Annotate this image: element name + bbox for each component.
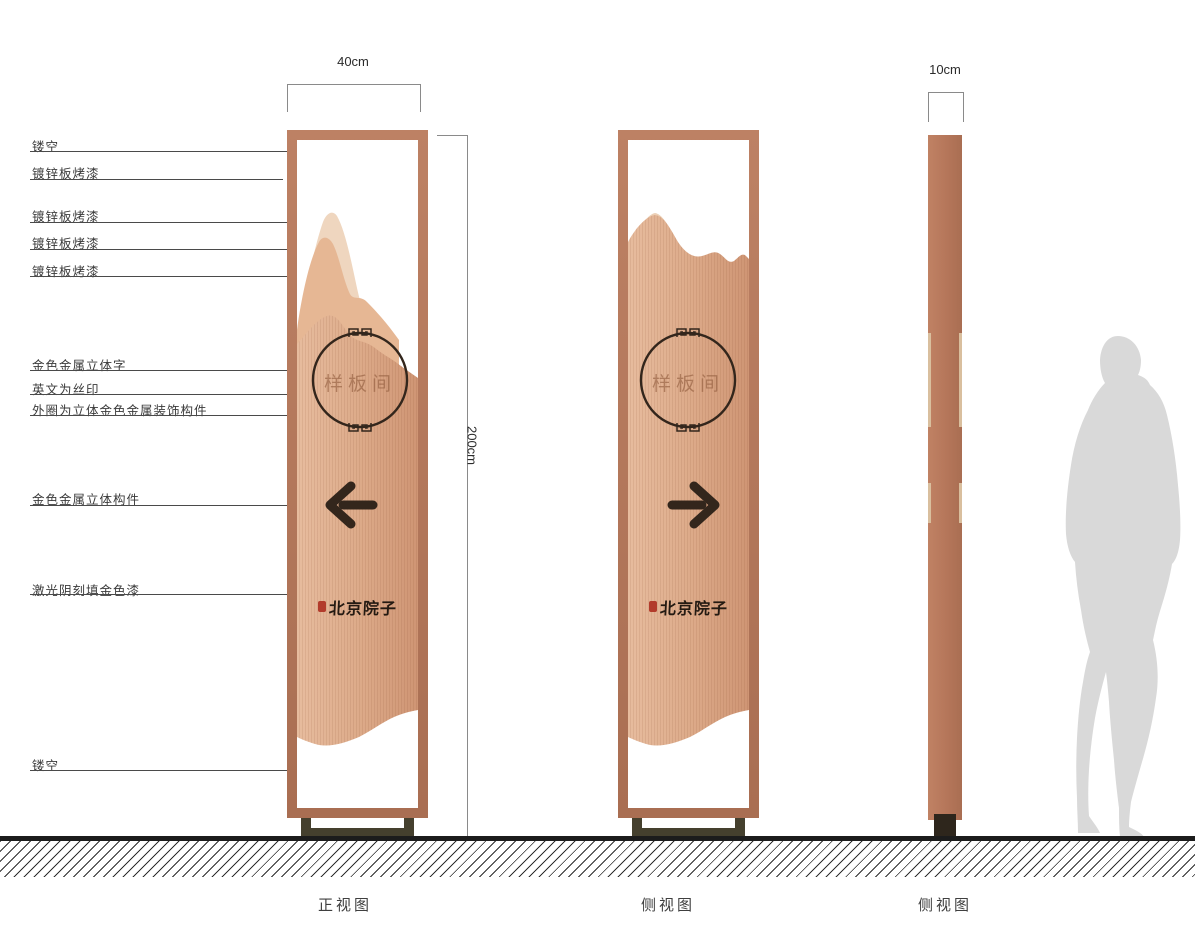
annotation-label-gold-letters: 金色金属立体字	[32, 355, 127, 374]
annotation-label-hollow-top: 镂空	[32, 136, 59, 155]
dimension-line	[467, 135, 468, 838]
profile-base-foot	[934, 814, 956, 838]
leader-line	[30, 594, 298, 595]
profile-protrusion	[928, 483, 931, 523]
caption-profile-view: 侧视图	[885, 894, 1005, 915]
leader-line	[30, 151, 305, 152]
base-bracket	[632, 818, 745, 838]
dimension-tick	[928, 92, 929, 122]
caption-front-view: 正视图	[285, 894, 405, 915]
room-name-text: 样板间	[300, 369, 420, 396]
profile-protrusion	[959, 483, 962, 523]
dimension-tick	[287, 84, 288, 112]
dimension-tick	[437, 135, 468, 136]
brand-logo: 北京院子	[628, 595, 749, 619]
annotation-label-outer-ring: 外圈为立体金色金属装饰构件	[32, 400, 208, 419]
brand-logo-text: 北京院子	[328, 595, 397, 619]
ground-hatching	[0, 841, 1195, 877]
profile-protrusion	[959, 333, 962, 427]
profile-protrusion	[928, 333, 931, 427]
dimension-width-label: 40cm	[293, 54, 413, 69]
profile-view-sign	[928, 135, 962, 820]
seal-stamp-icon	[649, 601, 657, 612]
seal-stamp-icon	[318, 601, 326, 612]
leader-line	[30, 276, 293, 277]
annotation-label-galvanized-4: 镀锌板烤漆	[32, 261, 100, 280]
dimension-tick	[420, 84, 421, 112]
brand-logo: 北京院子	[297, 595, 418, 619]
dimension-line	[287, 84, 421, 85]
leader-line	[30, 249, 292, 250]
annotation-label-hollow-bottom: 镂空	[32, 755, 59, 774]
dimension-line	[928, 92, 964, 93]
dimension-height-label: 200cm	[465, 411, 480, 481]
dimension-tick	[963, 92, 964, 122]
annotation-label-laser-engraved: 激光阴刻填金色漆	[32, 580, 140, 599]
leader-line	[30, 179, 283, 180]
sign-panel-texture	[628, 215, 749, 746]
front-view-sign	[287, 130, 428, 840]
leader-line	[30, 222, 323, 223]
side-view-sign	[618, 130, 759, 840]
brand-logo-text: 北京院子	[659, 595, 728, 619]
annotation-label-silkscreen: 英文为丝印	[32, 379, 100, 398]
caption-side-view: 侧视图	[608, 894, 728, 915]
design-drawing-canvas: 镂空 镀锌板烤漆 镀锌板烤漆 镀锌板烤漆 镀锌板烤漆 金色金属立体字 英文为丝印…	[0, 0, 1195, 927]
person-silhouette	[1040, 330, 1185, 845]
leader-line	[30, 770, 302, 771]
room-name-text: 样板间	[628, 369, 748, 396]
leader-line	[30, 415, 315, 416]
dimension-depth-label: 10cm	[885, 62, 1005, 77]
base-bracket	[301, 818, 414, 838]
